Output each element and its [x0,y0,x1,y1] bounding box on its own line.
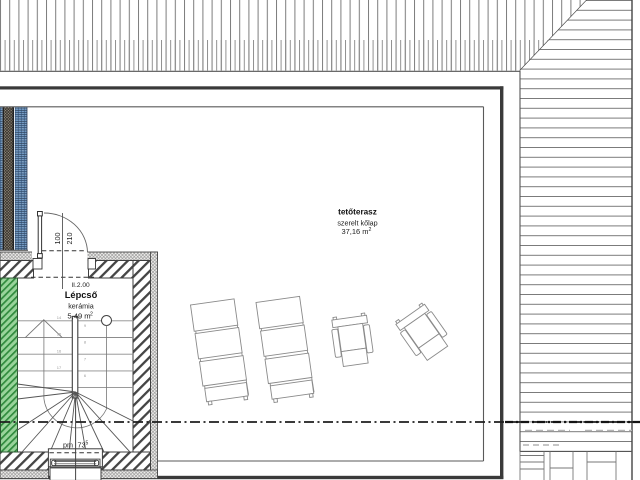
svg-text:kerámia: kerámia [68,301,94,310]
svg-text:210: 210 [65,233,74,245]
svg-text:tetőterasz: tetőterasz [338,208,377,217]
svg-text:2: 2 [90,311,93,317]
svg-text:73: 73 [78,441,86,450]
svg-text:2: 2 [369,227,372,233]
svg-text:17: 17 [57,365,62,370]
svg-text:16: 16 [57,348,62,353]
svg-text:pm: pm [63,441,73,450]
svg-text:14: 14 [57,315,62,320]
svg-text:15: 15 [57,332,62,337]
svg-text:37,16 m: 37,16 m [341,227,368,236]
svg-text:5: 5 [86,441,89,447]
svg-text:II.2.00: II.2.00 [71,282,90,289]
svg-text:100: 100 [53,233,62,245]
svg-text:Lépcső: Lépcső [65,290,98,300]
svg-text:5,49 m: 5,49 m [67,311,90,320]
